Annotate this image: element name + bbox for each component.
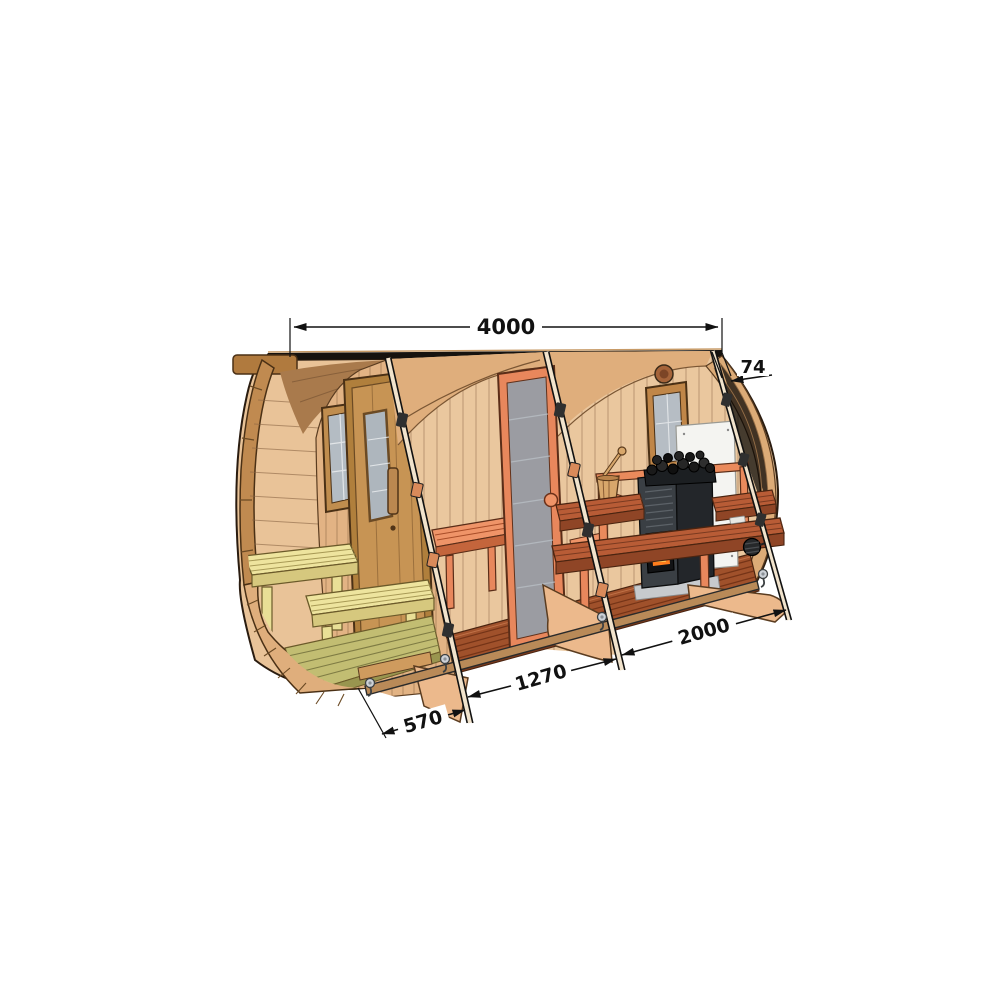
round-vent-top xyxy=(655,365,673,383)
shackle-icon xyxy=(759,570,768,588)
dimension-total-length-label: 4000 xyxy=(477,315,535,339)
door-handle xyxy=(388,468,398,514)
dimension-porch-length-label: 570 xyxy=(401,706,445,738)
dimension-sauna-room-length-label: 2000 xyxy=(676,614,733,650)
dimension-middle-room-length-label: 1270 xyxy=(513,660,570,696)
dimension-middle-room-length: 1270 xyxy=(468,659,616,697)
door-keyhole xyxy=(390,525,395,530)
dimension-end-thickness-label: 74 xyxy=(740,357,765,378)
barrel-sauna-dimension-diagram: 4000 74 570 1270 2000 xyxy=(0,0,1000,1000)
diagram-canvas: 4000 74 570 1270 2000 xyxy=(0,0,1000,1000)
